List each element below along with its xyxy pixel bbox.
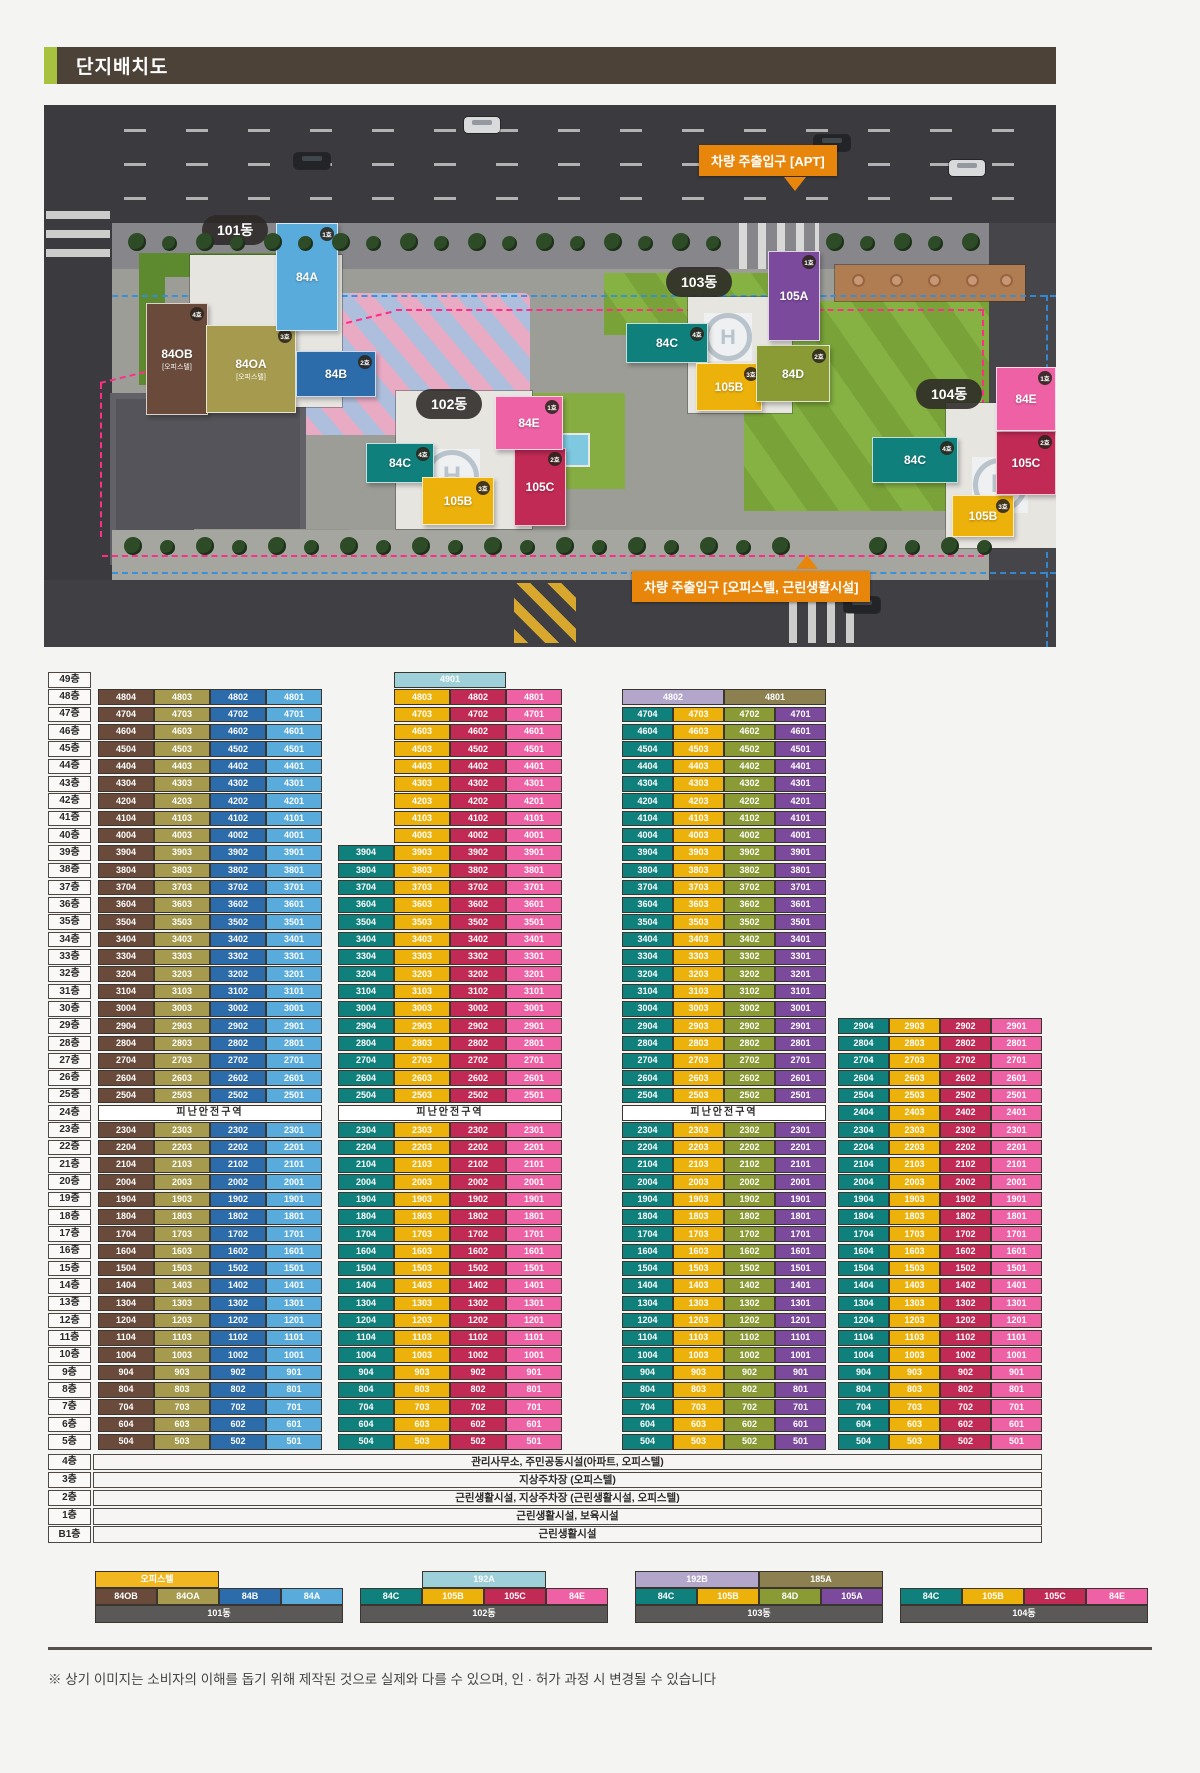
car	[949, 160, 985, 176]
unit-cell: 1303	[154, 1296, 210, 1312]
unit-cell: 3503	[394, 914, 450, 930]
tree	[468, 233, 486, 251]
building-pill: 102동	[416, 389, 482, 419]
unit-cell: 4602	[210, 724, 266, 740]
unit-cell: 1803	[673, 1209, 724, 1225]
legend-cell: 105B	[962, 1588, 1024, 1605]
unit-cell: 3101	[506, 984, 562, 1000]
unit-cell: 3301	[266, 949, 322, 965]
tree	[536, 233, 554, 251]
unit-cell: 1202	[210, 1313, 266, 1329]
unit-cell: 3901	[506, 845, 562, 861]
wing-block: 105B3호	[952, 495, 1014, 537]
wing-badge: 1호	[1038, 371, 1052, 385]
unit-cell: 1401	[506, 1278, 562, 1294]
wing-block: 84OB[오피스텔]4호	[146, 303, 208, 415]
unit-cell: 3801	[775, 863, 826, 879]
unit-cell: 3901	[775, 845, 826, 861]
unit-cell: 2904	[622, 1018, 673, 1034]
tree	[706, 236, 721, 251]
unit-cell: 2002	[724, 1174, 775, 1190]
unit-cell: 2504	[98, 1088, 154, 1104]
unit-cell: 1601	[266, 1244, 322, 1260]
unit-cell: 3102	[450, 984, 506, 1000]
floor-label: 3층	[48, 1472, 91, 1489]
unit-cell: 2701	[991, 1053, 1042, 1069]
page-title: 단지배치도	[76, 47, 168, 84]
unit-cell: 4301	[775, 776, 826, 792]
unit-cell: 3203	[673, 966, 724, 982]
building-pill: 104동	[916, 379, 982, 409]
unit-cell: 1503	[889, 1261, 940, 1277]
section-header: 단지배치도	[44, 47, 1056, 84]
unit-cell: 801	[991, 1382, 1042, 1398]
legend-dong-bar: 101동	[95, 1605, 343, 1623]
unit-cell: 1604	[98, 1244, 154, 1260]
legend-cell: 84C	[900, 1588, 962, 1605]
entrance-pointer-officetel	[796, 555, 818, 569]
wing-badge: 2호	[548, 452, 562, 466]
unit-cell: 4601	[266, 724, 322, 740]
unit-cell: 601	[506, 1417, 562, 1433]
unit-cell: 1904	[338, 1192, 394, 1208]
unit-cell: 701	[506, 1399, 562, 1415]
unit-cell: 3703	[394, 880, 450, 896]
unit-cell: 2203	[154, 1140, 210, 1156]
unit-cell: 4703	[673, 707, 724, 723]
unit-cell: 1403	[394, 1278, 450, 1294]
unit-cell: 2004	[338, 1174, 394, 1190]
header-accent-bar	[44, 47, 57, 84]
unit-cell: 3701	[266, 880, 322, 896]
unit-cell: 3104	[338, 984, 394, 1000]
unit-cell: 4301	[506, 776, 562, 792]
unit-cell: 1003	[154, 1347, 210, 1363]
unit-cell: 2602	[210, 1070, 266, 1086]
unit-cell: 1404	[338, 1278, 394, 1294]
unit-cell: 802	[940, 1382, 991, 1398]
unit-cell: 2001	[506, 1174, 562, 1190]
unit-cell: 2002	[940, 1174, 991, 1190]
unit-cell: 604	[338, 1417, 394, 1433]
legend-cell: 84E	[1086, 1588, 1148, 1605]
floor-label: 32층	[48, 966, 91, 982]
unit-cell: 4703	[154, 707, 210, 723]
unit-cell: 803	[673, 1382, 724, 1398]
unit-cell: 4201	[266, 793, 322, 809]
unit-cell: 2702	[724, 1053, 775, 1069]
unit-cell: 4403	[394, 759, 450, 775]
unit-cell: 904	[98, 1365, 154, 1381]
unit-cell: 1401	[991, 1278, 1042, 1294]
unit-cell: 1902	[210, 1192, 266, 1208]
unit-cell: 1201	[266, 1313, 322, 1329]
unit-cell: 2004	[622, 1174, 673, 1190]
unit-cell: 1604	[622, 1244, 673, 1260]
unit-cell: 1404	[98, 1278, 154, 1294]
legend-dong-bar: 103동	[635, 1605, 883, 1623]
floor-label: 28층	[48, 1036, 91, 1052]
unit-cell: 3902	[210, 845, 266, 861]
crosswalk	[46, 203, 110, 257]
unit-cell: 1604	[838, 1244, 889, 1260]
unit-cell: 2903	[889, 1018, 940, 1034]
unit-cell: 3304	[98, 949, 154, 965]
unit-cell: 903	[673, 1365, 724, 1381]
unit-cell: 1501	[506, 1261, 562, 1277]
unit-cell: 4401	[775, 759, 826, 775]
floor-label: 26층	[48, 1070, 91, 1086]
unit-cell: 1501	[266, 1261, 322, 1277]
unit-cell: 2404	[838, 1105, 889, 1121]
unit-cell: 504	[98, 1434, 154, 1450]
unit-cell: 3201	[266, 966, 322, 982]
unit-cell: 1601	[991, 1244, 1042, 1260]
tree	[664, 540, 679, 555]
unit-cell: 2503	[673, 1088, 724, 1104]
wing-badge: 3호	[476, 481, 490, 495]
unit-cell: 1701	[775, 1226, 826, 1242]
unit-cell: 1001	[506, 1347, 562, 1363]
unit-cell: 2101	[991, 1157, 1042, 1173]
unit-cell: 4701	[775, 707, 826, 723]
unit-cell: 1403	[673, 1278, 724, 1294]
unit-cell: 4002	[210, 828, 266, 844]
unit-cell: 2203	[673, 1140, 724, 1156]
unit-cell: 904	[838, 1365, 889, 1381]
unit-cell: 804	[338, 1382, 394, 1398]
tree	[556, 537, 574, 555]
unit-cell: 601	[775, 1417, 826, 1433]
unit-cell: 2604	[622, 1070, 673, 1086]
unit-cell: 1301	[775, 1296, 826, 1312]
floor-label: 47층	[48, 707, 91, 723]
unit-cell: 4002	[450, 828, 506, 844]
unit-cell: 2004	[838, 1174, 889, 1190]
unit-cell: 2904	[338, 1018, 394, 1034]
unit-cell: 1904	[98, 1192, 154, 1208]
unit-cell: 4604	[98, 724, 154, 740]
unit-cell: 1203	[394, 1313, 450, 1329]
unit-cell: 4402	[724, 759, 775, 775]
unit-cell: 2702	[450, 1053, 506, 1069]
unit-cell: 804	[98, 1382, 154, 1398]
unit-cell: 3904	[338, 845, 394, 861]
unit-cell: 3602	[724, 897, 775, 913]
wing-label: 84C	[389, 456, 411, 470]
unit-cell: 4603	[394, 724, 450, 740]
unit-cell: 3603	[673, 897, 724, 913]
wing-label: 84C	[656, 336, 678, 350]
unit-cell: 3701	[506, 880, 562, 896]
unit-cell: 3604	[98, 897, 154, 913]
unit-cell: 2703	[154, 1053, 210, 1069]
unit-cell: 2003	[154, 1174, 210, 1190]
wing-label: 84A	[296, 270, 318, 284]
floor-label: 11층	[48, 1330, 91, 1346]
wing-label: 105B	[444, 494, 473, 508]
unit-cell: 1601	[775, 1244, 826, 1260]
unit-cell: 904	[338, 1365, 394, 1381]
unit-cell: 901	[506, 1365, 562, 1381]
unit-cell: 3204	[98, 966, 154, 982]
unit-cell: 2101	[266, 1157, 322, 1173]
unit-cell: 2501	[991, 1088, 1042, 1104]
unit-cell: 2502	[724, 1088, 775, 1104]
unit-cell: 4104	[622, 811, 673, 827]
unit-cell: 2303	[889, 1122, 940, 1138]
unit-cell: 704	[98, 1399, 154, 1415]
unit-cell: 1202	[940, 1313, 991, 1329]
unit-cell: 1304	[338, 1296, 394, 1312]
floor-label: 46층	[48, 724, 91, 740]
legend-header: 192A	[422, 1571, 546, 1588]
legend-cell: 84E	[546, 1588, 608, 1605]
floor-label: 39층	[48, 845, 91, 861]
wing-badge: 4호	[690, 327, 704, 341]
unit-cell: 1402	[210, 1278, 266, 1294]
unit-cell: 3903	[154, 845, 210, 861]
unit-cell: 4202	[724, 793, 775, 809]
unit-cell: 2801	[775, 1036, 826, 1052]
floor-label: 42층	[48, 793, 91, 809]
unit-cell: 3401	[266, 932, 322, 948]
unit-cell: 3803	[394, 863, 450, 879]
legend-cell: 105B	[697, 1588, 759, 1605]
tree	[700, 537, 718, 555]
unit-cell: 2101	[775, 1157, 826, 1173]
wing-label: 84D	[782, 367, 804, 381]
unit-cell: 4201	[775, 793, 826, 809]
unit-cell: 4003	[154, 828, 210, 844]
unit-cell: 502	[210, 1434, 266, 1450]
tree	[400, 233, 418, 251]
unit-cell: 1502	[210, 1261, 266, 1277]
wing-block: 84E1호	[996, 367, 1056, 431]
unit-cell: 1003	[889, 1347, 940, 1363]
wing-badge: 3호	[996, 499, 1010, 513]
floor-label: B1층	[48, 1526, 91, 1543]
unit-cell: 3601	[266, 897, 322, 913]
unit-cell: 2901	[991, 1018, 1042, 1034]
unit-cell: 2003	[889, 1174, 940, 1190]
unit-cell: 3404	[338, 932, 394, 948]
floor-label: 16층	[48, 1244, 91, 1260]
unit-cell: 4404	[622, 759, 673, 775]
unit-cell: 1302	[210, 1296, 266, 1312]
unit-cell: 803	[154, 1382, 210, 1398]
divider	[48, 1647, 1152, 1650]
unit-cell: 2102	[724, 1157, 775, 1173]
unit-cell: 3702	[724, 880, 775, 896]
tree	[230, 236, 245, 251]
unit-cell: 3104	[98, 984, 154, 1000]
unit-cell: 4504	[622, 741, 673, 757]
unit-cell: 2303	[394, 1122, 450, 1138]
unit-cell: 1301	[991, 1296, 1042, 1312]
legend-cell: 105B	[422, 1588, 484, 1605]
unit-cell: 2303	[154, 1122, 210, 1138]
unit-cell: 3304	[622, 949, 673, 965]
unit-cell: 2902	[450, 1018, 506, 1034]
tree	[962, 233, 980, 251]
unit-cell: 802	[450, 1382, 506, 1398]
unit-cell: 2802	[724, 1036, 775, 1052]
floor-label: 48층	[48, 689, 91, 705]
unit-cell: 4503	[673, 741, 724, 757]
floor-label: 2층	[48, 1490, 91, 1507]
unit-cell: 1504	[98, 1261, 154, 1277]
unit-cell: 3002	[450, 1001, 506, 1017]
unit-cell: 2903	[673, 1018, 724, 1034]
unit-cell: 702	[210, 1399, 266, 1415]
unit-cell: 3103	[154, 984, 210, 1000]
unit-cell: 603	[394, 1417, 450, 1433]
tree	[520, 540, 535, 555]
unit-cell: 3702	[210, 880, 266, 896]
unit-cell: 1104	[622, 1330, 673, 1346]
floor-label: 9층	[48, 1365, 91, 1381]
unit-cell: 1801	[506, 1209, 562, 1225]
unit-cell: 2804	[838, 1036, 889, 1052]
unit-cell: 1701	[506, 1226, 562, 1242]
unit-cell: 3501	[266, 914, 322, 930]
unit-cell: 2902	[724, 1018, 775, 1034]
unit-cell: 4102	[724, 811, 775, 827]
unit-cell: 603	[673, 1417, 724, 1433]
wing-badge: 1호	[545, 400, 559, 414]
wing-sublabel: [오피스텔]	[236, 372, 266, 382]
unit-cell: 2902	[940, 1018, 991, 1034]
floor-label: 27층	[48, 1053, 91, 1069]
legend-cell: 105C	[1024, 1588, 1086, 1605]
unit-cell: 3901	[266, 845, 322, 861]
floor-label: 36층	[48, 897, 91, 913]
unit-cell: 3502	[210, 914, 266, 930]
unit-cell: 2104	[622, 1157, 673, 1173]
unit-cell: 4601	[775, 724, 826, 740]
unit-cell: 501	[991, 1434, 1042, 1450]
unit-cell: 4403	[154, 759, 210, 775]
unit-cell: 4303	[394, 776, 450, 792]
unit-cell: 1203	[889, 1313, 940, 1329]
floor-label: 14층	[48, 1278, 91, 1294]
tree	[928, 236, 943, 251]
unit-cell: 4302	[450, 776, 506, 792]
unit-cell: 2003	[673, 1174, 724, 1190]
wing-badge: 3호	[278, 329, 292, 343]
tree	[502, 236, 517, 251]
unit-cell: 601	[991, 1417, 1042, 1433]
unit-cell: 4302	[210, 776, 266, 792]
unit-cell: 1802	[724, 1209, 775, 1225]
unit-cell: 3503	[154, 914, 210, 930]
tree	[941, 537, 959, 555]
unit-cell: 1302	[450, 1296, 506, 1312]
unit-cell: 3601	[506, 897, 562, 913]
unit-cell: 1502	[940, 1261, 991, 1277]
unit-cell: 2203	[889, 1140, 940, 1156]
unit-cell: 1302	[940, 1296, 991, 1312]
unit-cell: 2201	[775, 1140, 826, 1156]
unit-cell: 4103	[394, 811, 450, 827]
unit-cell: 1101	[506, 1330, 562, 1346]
unit-cell: 1101	[266, 1330, 322, 1346]
legend-dong-bar: 102동	[360, 1605, 608, 1623]
unit-cell: 501	[775, 1434, 826, 1450]
wing-label: 105A	[780, 289, 809, 303]
unit-cell: 2804	[338, 1036, 394, 1052]
unit-cell: 2702	[210, 1053, 266, 1069]
unit-cell: 3604	[622, 897, 673, 913]
unit-cell: 3904	[98, 845, 154, 861]
unit-cell: 4803	[154, 689, 210, 705]
unit-cell: 1204	[622, 1313, 673, 1329]
floor-label: 6층	[48, 1417, 91, 1433]
unit-cell: 1501	[991, 1261, 1042, 1277]
unit-cell: 3003	[394, 1001, 450, 1017]
unit-cell: 1803	[154, 1209, 210, 1225]
wing-badge: 4호	[190, 307, 204, 321]
unit-cell: 1303	[673, 1296, 724, 1312]
unit-cell: 703	[889, 1399, 940, 1415]
tree	[332, 233, 350, 251]
unit-cell: 3501	[506, 914, 562, 930]
unit-cell: 4304	[622, 776, 673, 792]
unit-cell: 1001	[266, 1347, 322, 1363]
unit-cell: 2903	[394, 1018, 450, 1034]
unit-cell: 1904	[622, 1192, 673, 1208]
unit-cell: 4202	[210, 793, 266, 809]
unit-cell: 3403	[154, 932, 210, 948]
unit-cell: 4104	[98, 811, 154, 827]
unit-cell: 2304	[338, 1122, 394, 1138]
unit-cell: 802	[724, 1382, 775, 1398]
tree	[977, 540, 992, 555]
unit-cell: 701	[991, 1399, 1042, 1415]
unit-cell: 1701	[266, 1226, 322, 1242]
unit-cell: 2801	[506, 1036, 562, 1052]
unit-cell: 3301	[506, 949, 562, 965]
unit-cell: 4503	[394, 741, 450, 757]
tree	[232, 540, 247, 555]
unit-cell: 1404	[838, 1278, 889, 1294]
unit-cell: 1404	[622, 1278, 673, 1294]
tree	[869, 537, 887, 555]
wing-block: 84E1호	[495, 396, 563, 450]
unit-cell: 2702	[940, 1053, 991, 1069]
unit-cell: 2401	[991, 1105, 1042, 1121]
unit-cell: 1504	[338, 1261, 394, 1277]
unit-cell: 3004	[622, 1001, 673, 1017]
penthouse-cell: 4901	[394, 672, 506, 688]
unit-cell: 2201	[991, 1140, 1042, 1156]
unit-cell: 703	[394, 1399, 450, 1415]
unit-cell: 503	[394, 1434, 450, 1450]
legend-cell: 84B	[219, 1588, 281, 1605]
unit-cell: 2204	[338, 1140, 394, 1156]
wing-block: 105C2호	[514, 448, 566, 526]
unit-cell: 1503	[394, 1261, 450, 1277]
tree	[826, 233, 844, 251]
unit-cell: 1304	[622, 1296, 673, 1312]
unit-cell: 2602	[450, 1070, 506, 1086]
unit-cell: 3804	[338, 863, 394, 879]
unit-cell: 2103	[394, 1157, 450, 1173]
unit-cell: 3104	[622, 984, 673, 1000]
unit-cell: 4303	[154, 776, 210, 792]
unit-cell: 1103	[154, 1330, 210, 1346]
